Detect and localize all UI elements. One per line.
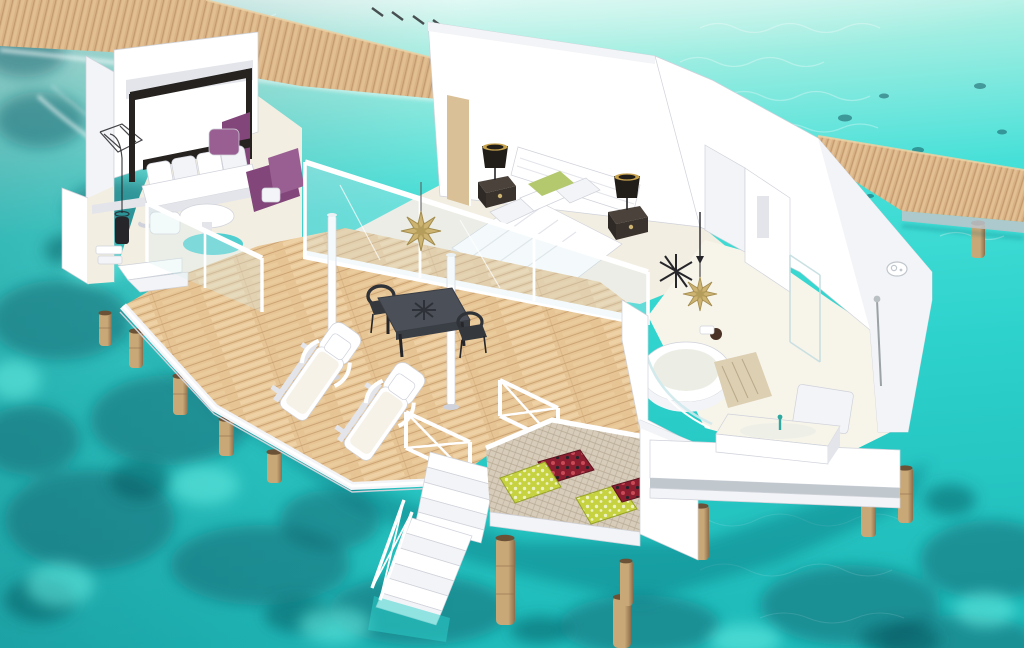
- wardrobe-niche: [757, 196, 769, 238]
- canopy-post-left: [129, 94, 135, 182]
- star-motif: [412, 300, 436, 320]
- armchair-pillow: [262, 188, 280, 202]
- scene-canvas: [0, 0, 1024, 648]
- balcony-parapet: [62, 188, 88, 284]
- balcony-floor: [88, 186, 114, 284]
- purple-cushion: [209, 129, 239, 155]
- towel-stack: [96, 246, 122, 254]
- rain-shower-head: [887, 262, 907, 276]
- tub-basin: [740, 423, 816, 439]
- planter-bin: [115, 217, 129, 244]
- villa-render: [0, 0, 1024, 648]
- gold-star-ornament-bath: [683, 277, 717, 311]
- towel-roll: [700, 326, 714, 334]
- wood-door-panel: [447, 95, 470, 206]
- gold-star-ornament-deck: [401, 211, 441, 251]
